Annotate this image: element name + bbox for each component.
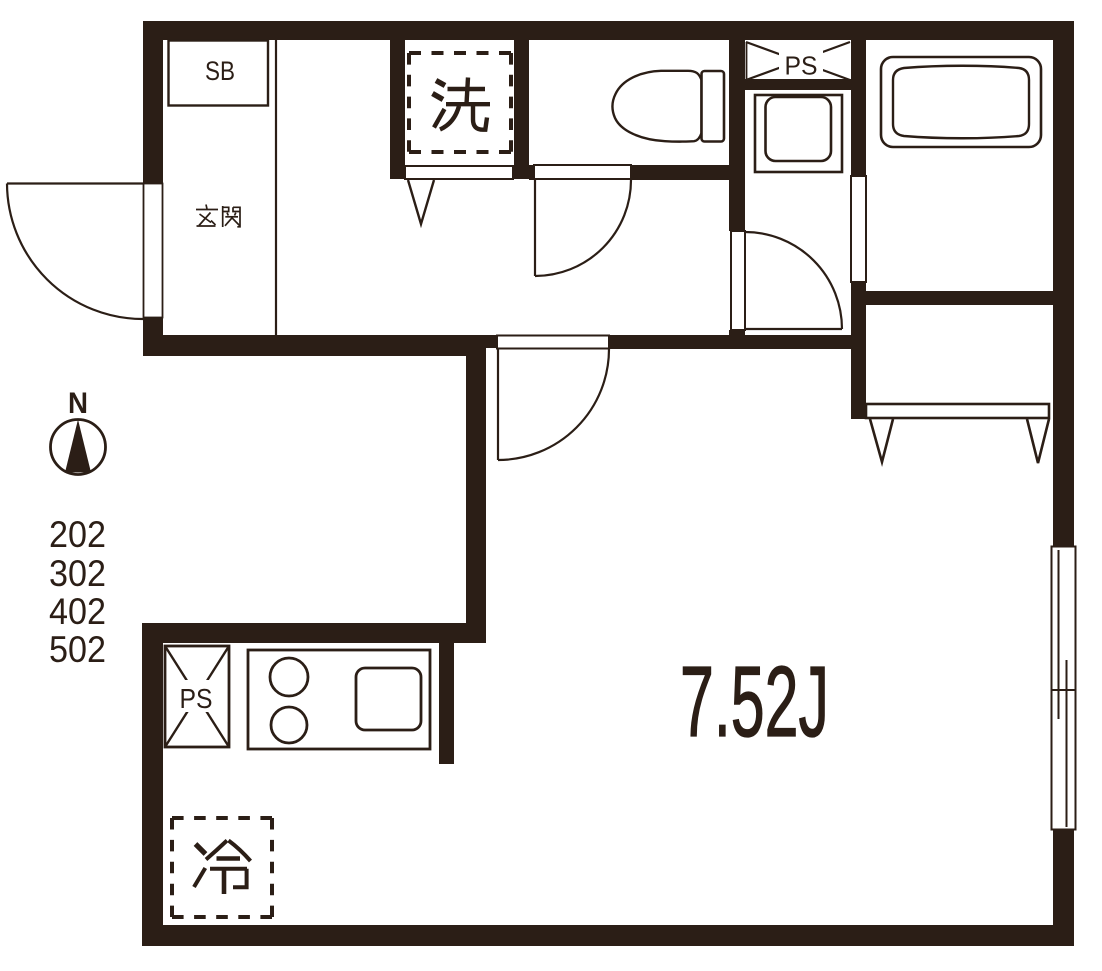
svg-text:7.52J: 7.52J <box>680 646 829 758</box>
svg-text:PS: PS <box>785 51 818 81</box>
svg-text:202: 202 <box>49 514 106 555</box>
svg-text:502: 502 <box>49 629 106 670</box>
svg-text:SB: SB <box>205 56 235 86</box>
svg-text:302: 302 <box>49 553 106 594</box>
svg-text:N: N <box>68 387 88 420</box>
svg-text:402: 402 <box>49 591 106 632</box>
svg-text:PS: PS <box>180 683 213 714</box>
